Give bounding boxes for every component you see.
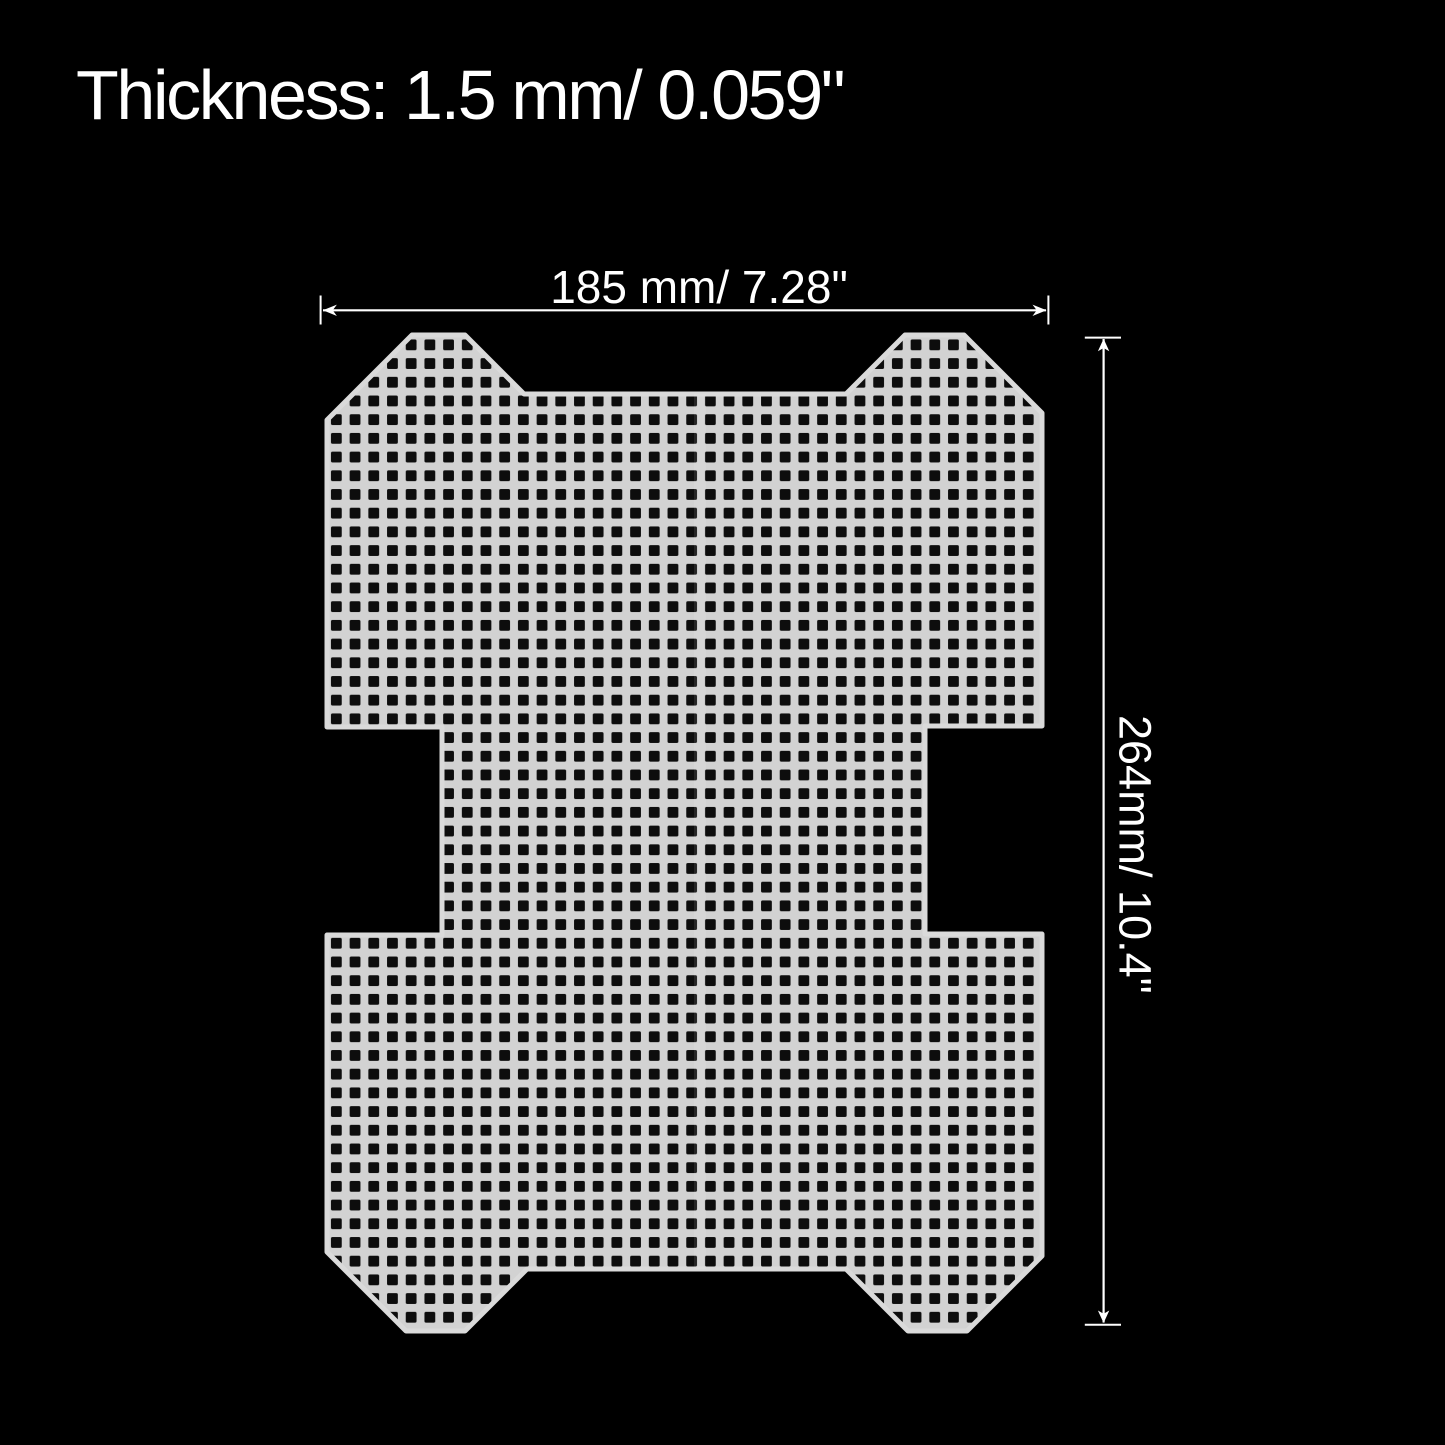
svg-text:264mm/ 10.4": 264mm/ 10.4" (1109, 715, 1160, 994)
svg-text:Thickness: 1.5 mm/ 0.059": Thickness: 1.5 mm/ 0.059" (76, 56, 843, 134)
svg-text:185 mm/ 7.28": 185 mm/ 7.28" (550, 261, 848, 313)
